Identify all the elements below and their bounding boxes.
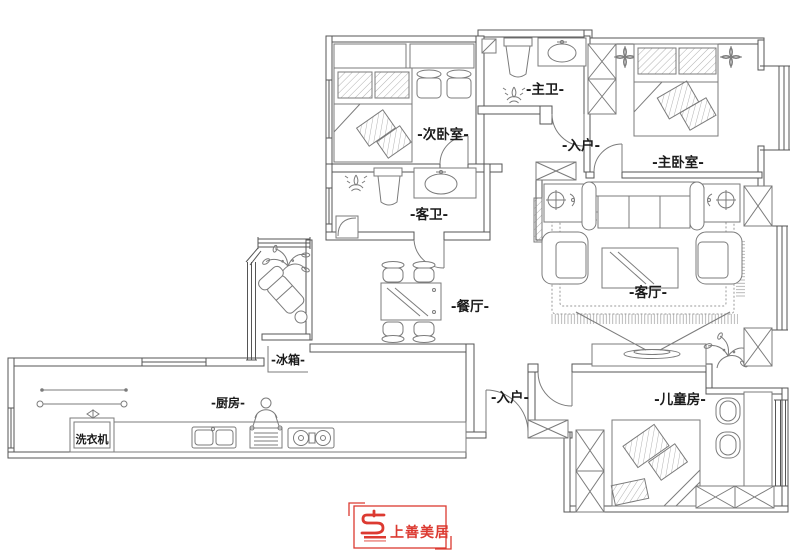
label-children-room: -儿童房- [654,391,706,408]
wardrobe-master [588,44,616,114]
toilet-guest [374,168,402,205]
grill-vent [250,428,282,448]
kids-wardrobe [576,430,604,512]
label-secondary-bedroom: -次卧室- [417,126,469,143]
kids-stools [716,398,740,458]
logo-text: 上善美居 [390,524,450,541]
tv-stand [592,344,706,366]
coffee-table [602,248,678,288]
toilet-master [504,38,532,77]
shower-symbol-guest [345,175,367,191]
door-arcs [414,114,622,432]
bed-secondary [334,68,412,162]
vanity-guest [414,168,476,198]
label-washing-machine: 洗衣机 [76,432,109,446]
label-master-bathroom: -主卫- [526,81,564,98]
label-dining-room: -餐厅- [451,298,489,315]
closet-top-right [744,186,772,226]
brand-logo: 上善美居 [349,503,451,549]
floor-plan: -次卧室- -主卫- -入户- -主卧室- -客卫- -餐厅- -客厅- -冰箱… [0,0,800,558]
side-table-left [544,184,584,222]
kids-desk [744,392,772,486]
drying-rack [37,388,128,407]
dining-set [381,262,441,343]
master-bedroom-furniture [588,44,742,136]
vanity-master [538,38,586,66]
label-master-bedroom: -主卧室- [652,154,704,171]
label-entry-upper: -入户- [562,137,600,154]
living-room-furniture [534,182,772,368]
sofa [582,182,704,230]
kitchen-sink [192,427,236,448]
floor-plan-canvas: -次卧室- -主卫- -入户- -主卧室- -客卫- -餐厅- -客厅- -冰箱… [0,0,800,558]
armchair-left [542,232,588,284]
column-hatched [534,198,542,242]
label-guest-bathroom: -客卫- [410,206,448,223]
secondary-bedroom-furniture [334,44,474,162]
corner-shelf [482,39,496,53]
label-living-room: -客厅- [629,284,667,301]
label-refrigerator: -冰箱- [271,352,305,367]
kids-cabinet [528,420,568,438]
kids-bed [611,420,700,506]
closet-bottom-right [744,328,772,366]
desk-chairs [417,70,471,98]
lounge-chair [257,264,309,323]
guest-bathroom-fixtures [336,168,476,238]
label-kitchen: -厨房- [211,395,245,410]
shoe-cabinet [536,162,576,180]
label-entry-lower: -入户- [491,389,529,406]
stove [288,428,334,448]
side-table-right [700,184,740,222]
armchair-right [696,232,742,284]
dining-table [381,283,441,320]
bed-master [634,44,718,136]
shower-symbol-master [503,87,525,103]
logo-monogram [362,511,386,542]
shower-tray [336,216,358,238]
kids-bottom-wardrobe [696,486,774,508]
